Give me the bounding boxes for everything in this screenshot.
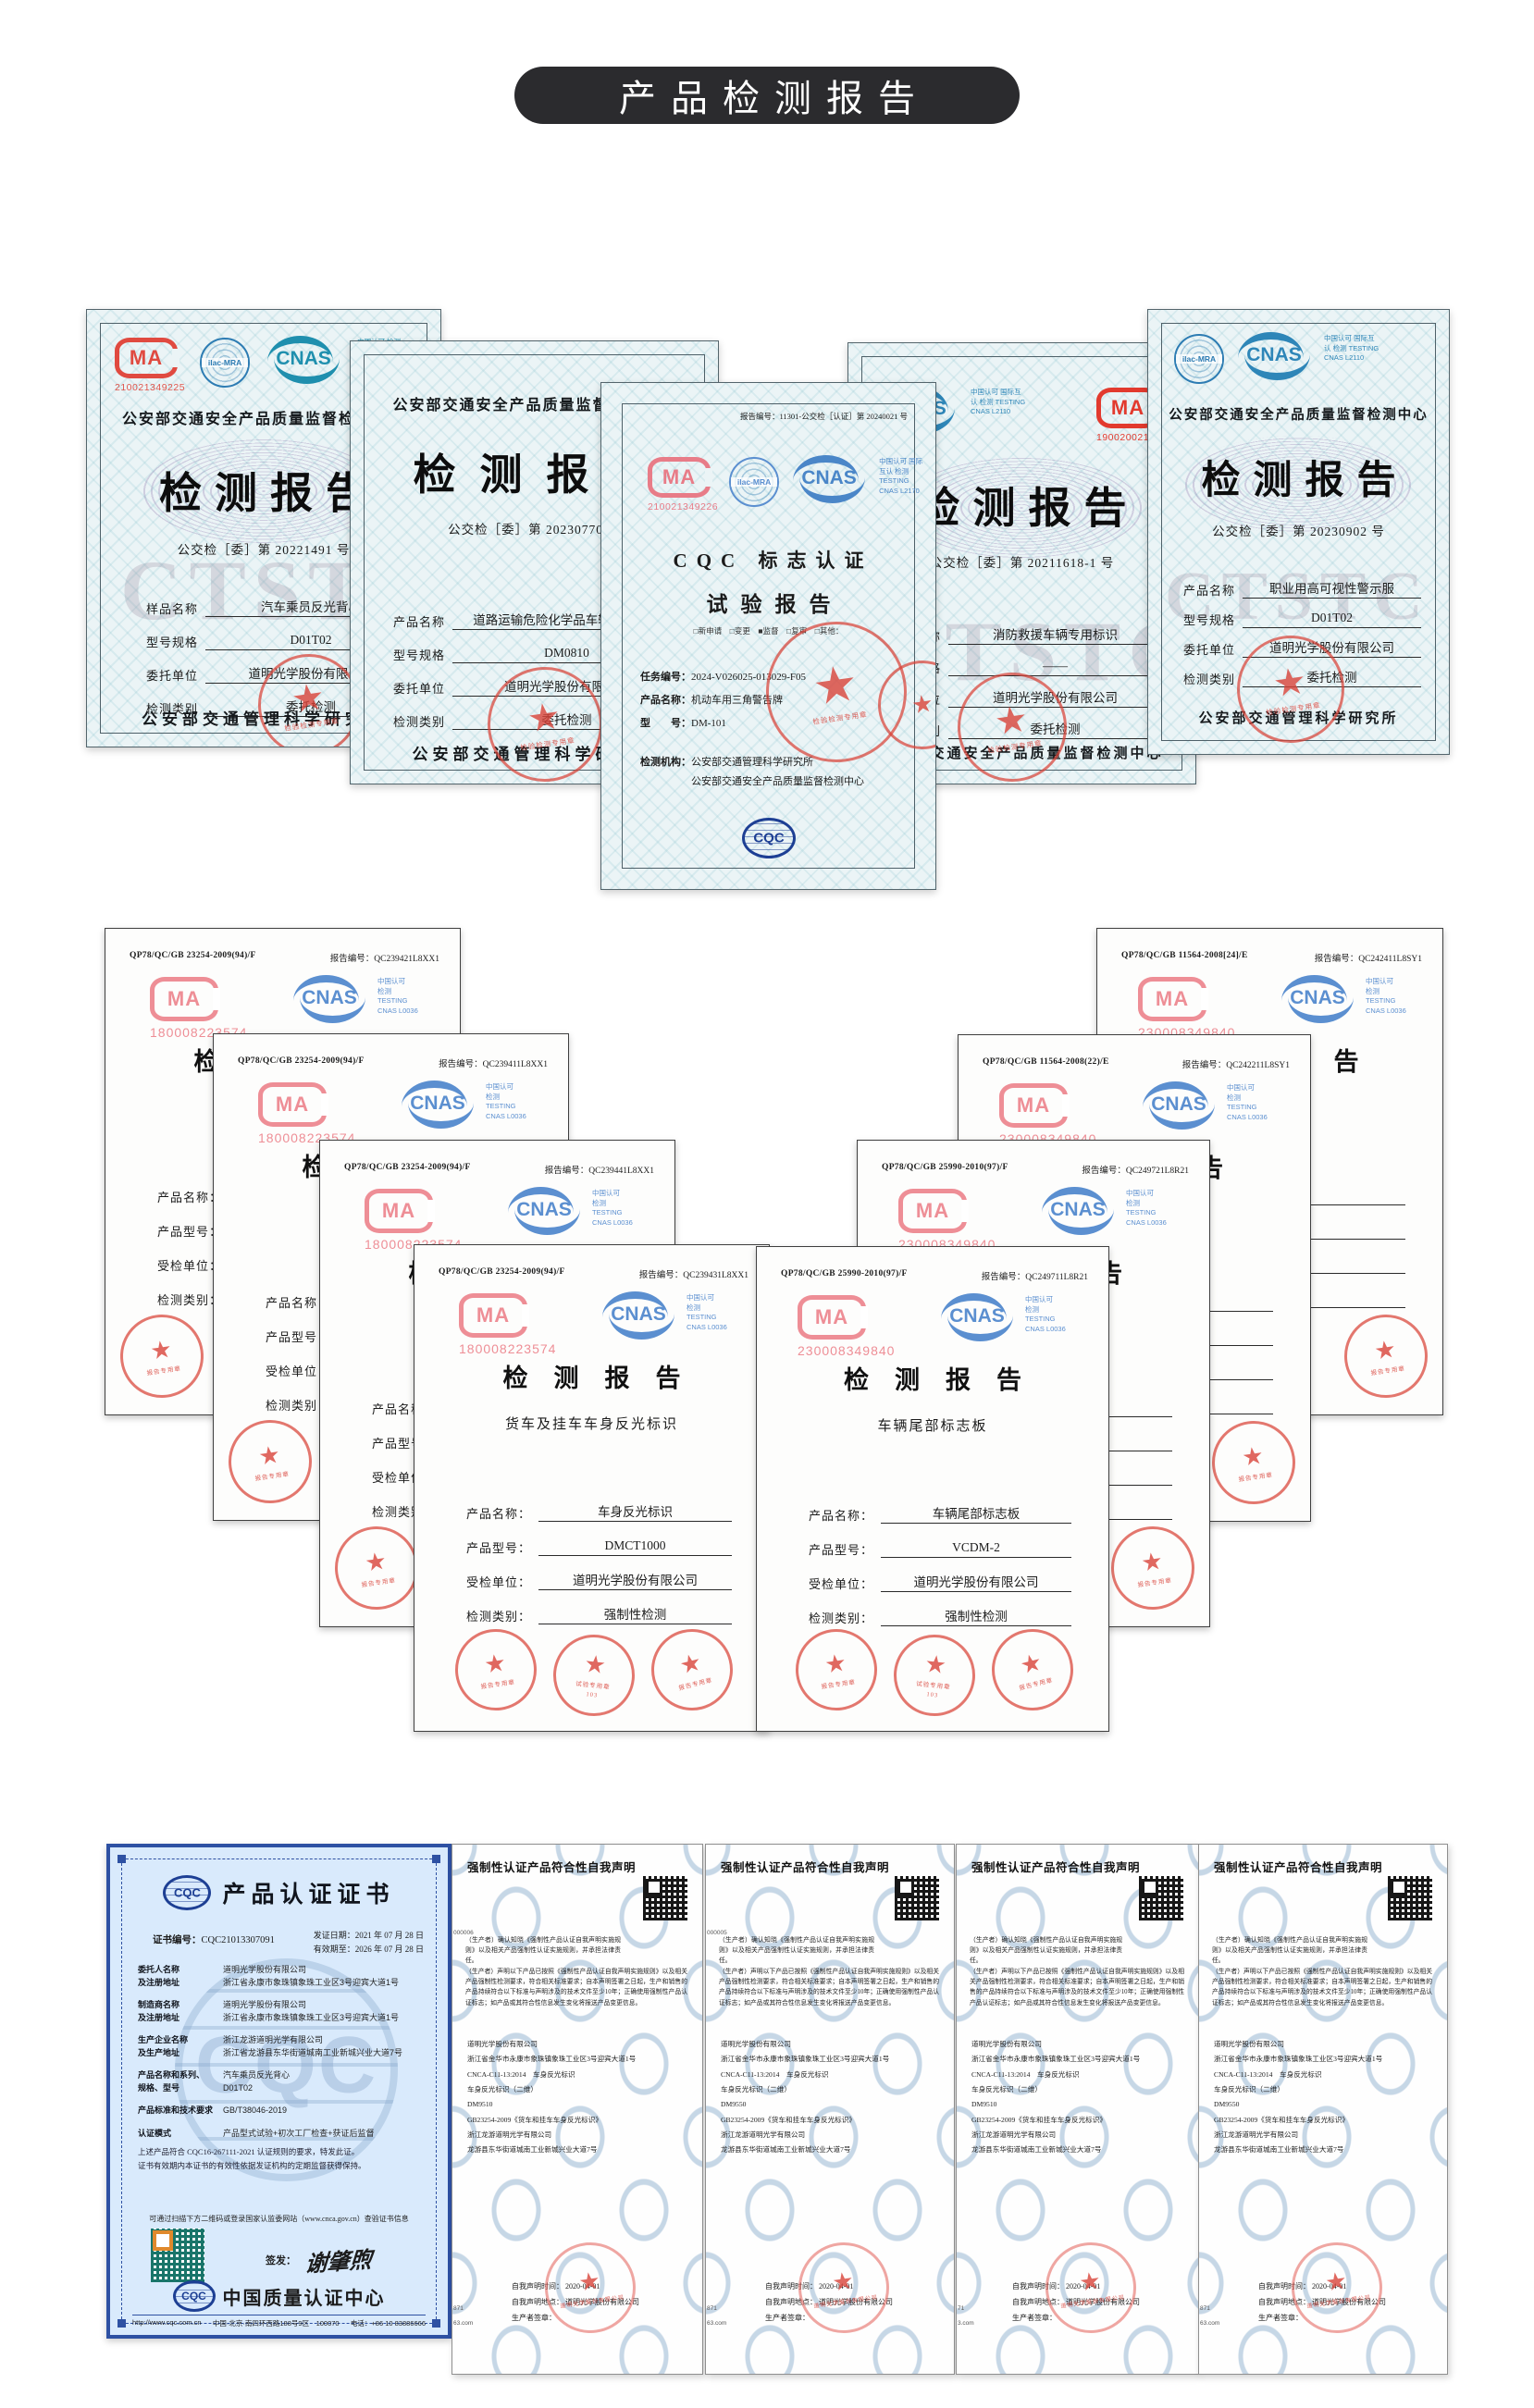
cqc-trial-report: 报告编号：11301-公交检［认证］第 20240021 号 MA 210021…: [600, 382, 936, 890]
cqc-product-certificate: CQC CQC 产品认证证书 证书编号：CQC21013307091 发证日期：…: [106, 1844, 452, 2339]
self-declaration-1: 强制性认证产品符合性自我声明 000006 （生产者）确认知晓《强制性产品认证自…: [452, 1844, 703, 2375]
cqc-logo: CQC: [163, 1875, 211, 1910]
field-label: 受检单位：: [466, 1573, 531, 1590]
signature-row: 签发： 谢肇煦: [266, 2243, 372, 2276]
star-icon: ★: [992, 700, 1030, 742]
report-title: 检测报告: [757, 1360, 1108, 1396]
trial-report-title: 试验报告: [601, 587, 935, 618]
cnas-side-text: 中国认可 国际互认 检测 TESTING CNAS L2170: [879, 457, 927, 496]
cma-icon: MA: [150, 977, 218, 1021]
row-value: 产品型式试验+初次工厂检查+获证后监督: [223, 2128, 375, 2141]
cma-logo-block: MA 180008223574: [150, 977, 247, 1040]
field-label: 检测类别: [393, 712, 445, 730]
star-icon: ★: [525, 698, 563, 739]
field-table: 产品名称：车辆尾部标志板 产品型号：VCDM-2 受检单位：道明光学股份有限公司…: [809, 1489, 1071, 1626]
field-label: 产品型号：: [809, 1540, 873, 1558]
report-cert-5: ilac-MRA CNAS 中国认可 国际互认 检测 TESTING CNAS …: [1147, 309, 1450, 755]
cnas-icon: CNAS: [265, 338, 342, 382]
row-label: 及注册地址: [138, 1977, 223, 1990]
row-label: 制造商名称: [138, 1999, 223, 2012]
report-number: 报告编号：QC249721L8R21: [1082, 1163, 1189, 1176]
standard-code: QP78/QC/GB 25990-2010(97)/F: [882, 1163, 1008, 1172]
cnas-side-text: 中国认可 国际互认 检测 TESTING CNAS L2110: [971, 388, 1028, 417]
report-stamp: ★报告专用章: [643, 1621, 742, 1720]
cqc-globe-icon: CQC: [742, 818, 796, 858]
star-icon: ★: [1078, 2269, 1103, 2296]
edge-fragment: 871: [453, 2305, 464, 2312]
row-value: GB/T38046-2019: [223, 2105, 287, 2118]
row-label: 及生产地址: [138, 2047, 223, 2060]
cma-icon: MA: [999, 1083, 1068, 1128]
cnas-side-text: 中国认可检测TESTINGCNAS L0036: [486, 1082, 543, 1127]
cma-logo-block: MA 210021349225: [115, 338, 185, 393]
field-value: DMCT1000: [538, 1538, 732, 1556]
ilac-mra-icon: ilac-MRA: [1174, 334, 1224, 384]
star-icon: ★: [910, 692, 935, 719]
model: DM-101: [691, 718, 726, 729]
cnas-side-text: 中国认可检测TESTINGCNAS L0036: [1126, 1189, 1183, 1233]
cnas-block: CNAS 中国认可检测TESTINGCNAS L0036: [505, 1189, 649, 1233]
report-stamp: ★报告专用章: [790, 1624, 882, 1715]
report-stamp: ★报告专用章: [329, 1521, 424, 1615]
qr-code: [895, 1876, 939, 1920]
sign-label: 签发：: [266, 2253, 296, 2267]
field-label: 产品名称：: [809, 1506, 873, 1524]
edge-fragment: 63.com: [1200, 2320, 1219, 2327]
row-label: 产品标准和技术要求: [138, 2105, 223, 2118]
qr-code: [1388, 1876, 1432, 1920]
check-options: □新申请 □变更 ■监督 □复审 □其他：: [601, 625, 935, 636]
agency-line-2: 公安部交通安全产品质量监督检测中心: [691, 776, 864, 787]
org-name: 中国质量认证中心: [223, 2283, 386, 2310]
field-label: 产品名称: [393, 612, 445, 630]
star-icon: ★: [483, 1650, 508, 1677]
field-value: 职业用高可视性警示服: [1243, 578, 1421, 599]
cnas-block: CNAS 中国认可检测TESTINGCNAS L0036: [1279, 977, 1423, 1021]
row-value: 浙江龙游道明光学有限公司: [223, 2034, 402, 2047]
cma-icon: MA: [258, 1082, 327, 1127]
cnas-icon: CNAS: [1039, 1189, 1117, 1233]
cnas-block: CNAS 中国认可检测TESTINGCNAS L0036: [938, 1295, 1082, 1340]
report-stamp: ★报告专用章: [1206, 1415, 1301, 1510]
cnas-side-text: 中国认可检测TESTINGCNAS L0036: [592, 1189, 649, 1233]
cnas-side-text: 中国认可检测TESTINGCNAS L0036: [1366, 977, 1423, 1021]
cma-icon: MA: [798, 1295, 866, 1340]
certificate-rows: 委托人名称及注册地址道明光学股份有限公司浙江省永康市象珠镇象珠工业区3号迎宾大道…: [138, 1964, 424, 2140]
declaration-paragraph: （生产者）确认知晓《强制性产品认证自我声明实施规则》以及相关产品强制性认证实施规…: [1212, 1935, 1367, 1967]
star-icon: ★: [149, 1337, 174, 1364]
cma-code: 210021349225: [115, 382, 185, 393]
cnas-icon: CNAS: [291, 977, 368, 1021]
page-title: 产品检测报告: [604, 68, 930, 122]
cnas-icon: CNAS: [399, 1082, 476, 1127]
field-value: 强制性检测: [881, 1606, 1071, 1626]
report-number: 报告编号：QC242211L8SY1: [1182, 1057, 1290, 1070]
field-label: 检测类别：: [809, 1609, 873, 1626]
cnas-side-text: 中国认可 国际互认 检测 TESTING CNAS L2110: [1324, 334, 1381, 364]
star-icon: ★: [810, 658, 860, 713]
page-title-banner: 产品检测报告: [514, 67, 1020, 124]
ilac-mra-icon: ilac-MRA: [200, 338, 250, 388]
cma-code: 210021349226: [648, 501, 718, 512]
self-declaration-3: 强制性认证产品符合性自我声明 （生产者）确认知晓《强制性产品认证自我声明实施规则…: [956, 1844, 1199, 2375]
star-icon: ★: [1270, 662, 1308, 704]
product-info-lines: 道明光学股份有限公司浙江省金华市永康市象珠镇象珠工业区3号迎宾大道1号 CNCA…: [467, 2037, 636, 2158]
declaration-title: 强制性认证产品符合性自我声明: [467, 1858, 636, 1875]
declaration-paragraph: （生产者）声明以下产品已按照《强制性产品认证自我声明实施规则》以及相关产品强制性…: [1212, 1967, 1432, 2008]
star-icon: ★: [583, 1651, 607, 1677]
field-value: 车辆尾部标志板: [881, 1503, 1071, 1524]
star-icon: ★: [923, 1651, 947, 1677]
certificate-notes: 上述产品符合 CQC16-267111-2021 认证规则的要求，特发此证。 证…: [138, 2145, 424, 2174]
report-stamp: ★报告专用章: [983, 1621, 1082, 1720]
star-icon: ★: [831, 2269, 856, 2296]
cnas-icon: CNAS: [1235, 334, 1313, 378]
declaration-paragraph: （生产者）确认知晓《强制性产品认证自我声明实施规则》以及相关产品强制性认证实施规…: [465, 1935, 621, 1967]
cma-logo-block: MA 230008349840: [1138, 977, 1235, 1040]
logo-row: MA 210021349226 ilac-MRA CNAS 中国认可 国际互认 …: [648, 457, 927, 512]
footer-url: http://www.cqc.com.cn: [132, 2318, 202, 2328]
corner-ornament: [118, 2319, 126, 2328]
report-number: 报告编号：11301-公交检［认证］第 20240021 号: [740, 411, 908, 422]
cma-logo-block: MA 230008349840: [999, 1083, 1096, 1146]
star-icon: ★: [677, 1649, 704, 1678]
row-value: 浙江省永康市象珠镇象珠工业区3号迎宾大道1号: [223, 2012, 399, 2025]
report-number: 公交检［委］第 20230902 号: [1148, 521, 1449, 539]
cert-header: CQC 产品认证证书: [110, 1875, 448, 1910]
cma-icon: MA: [648, 457, 711, 498]
standard-code: QP78/QC/GB 11564-2008[24]/E: [1121, 951, 1248, 960]
declaration-paragraph: （生产者）声明以下产品已按照《强制性产品认证自我声明实施规则》以及相关产品强制性…: [465, 1967, 687, 2008]
report-number: 报告编号：QC239421L8XX1: [330, 951, 439, 964]
product-info-lines: 道明光学股份有限公司浙江省金华市永康市象珠镇象珠工业区3号迎宾大道1号 CNCA…: [721, 2037, 889, 2158]
test-stamp: ★试验专用章103: [890, 1631, 980, 1721]
standard-code: QP78/QC/GB 25990-2010(97)/F: [781, 1269, 908, 1278]
report-title: 检测报告: [414, 1358, 769, 1394]
cma-code: 180008223574: [459, 1341, 556, 1356]
footer-address: 中国·北京·南四环西路188号9区 100070: [213, 2318, 340, 2328]
star-icon: ★: [1324, 2269, 1349, 2296]
cma-icon: MA: [459, 1293, 527, 1338]
standard-code: QP78/QC/GB 23254-2009(94)/F: [130, 951, 256, 960]
field-value: VCDM-2: [881, 1540, 1071, 1558]
row-label: 认证模式: [138, 2128, 223, 2141]
edge-fragment: 63.com: [707, 2320, 726, 2327]
corner-ornament: [432, 2319, 440, 2328]
report-subtitle: 货车及挂车车身反光标识: [414, 1414, 769, 1433]
cma-logo-block: MA 210021349226: [648, 457, 718, 512]
cnas-block: CNAS 中国认可检测TESTINGCNAS L0036: [399, 1082, 543, 1127]
star-icon: ★: [577, 2269, 602, 2296]
star-icon: ★: [289, 678, 327, 720]
standard-code: QP78/QC/GB 23254-2009(94)/F: [238, 1056, 365, 1066]
task-no-label: 任务编号：: [640, 672, 691, 683]
row-value: D01T02: [223, 2082, 290, 2095]
certificate-footer: http://www.cqc.com.cn 中国·北京·南四环西路188号9区 …: [132, 2315, 426, 2328]
cnas-side-text: 中国认可检测TESTINGCNAS L0036: [1025, 1295, 1082, 1340]
edge-fragment: 71: [958, 2305, 964, 2312]
cma-logo-block: MA 180008223574: [459, 1293, 556, 1356]
report-stamp: ★报告专用章: [1339, 1309, 1433, 1403]
field-value: D01T02: [1243, 611, 1421, 628]
qr-code: [643, 1876, 687, 1920]
qr-code: [151, 2229, 204, 2282]
field-label: 型号规格: [393, 646, 445, 663]
field-label: 委托单位: [393, 679, 445, 697]
footer-phone: 电话：+86 10 83886666: [351, 2318, 426, 2328]
field-value: 道明光学股份有限公司: [538, 1570, 732, 1590]
edge-fragment: 871: [707, 2305, 717, 2312]
row-value: 汽车乘员反光背心: [223, 2069, 290, 2082]
field-table: 产品名称：车身反光标识 产品型号：DMCT1000 受检单位：道明光学股份有限公…: [466, 1488, 732, 1624]
field-value: 强制性检测: [538, 1604, 732, 1624]
cma-logo-block: MA 230008349840: [798, 1295, 895, 1358]
field-label: 型号规格: [1183, 611, 1235, 628]
corner-ornament: [118, 1855, 126, 1863]
cma-logo-block: MA 230008349840: [898, 1189, 996, 1252]
product-label: 产品名称：: [640, 695, 691, 706]
field-label: 检测类别: [1183, 670, 1235, 687]
edge-fragment: 3.com: [958, 2320, 974, 2327]
row-value: 浙江省永康市象珠镇象珠工业区3号迎宾大道1号: [223, 1977, 399, 1990]
report-number: 报告编号：QC242411L8SY1: [1315, 951, 1422, 964]
star-icon: ★: [257, 1442, 282, 1469]
report-number: 报告编号：QC239441L8XX1: [545, 1163, 654, 1176]
self-declaration-4: 强制性认证产品符合性自我声明 （生产者）确认知晓《强制性产品认证自我声明实施规则…: [1198, 1844, 1448, 2375]
star-icon: ★: [1241, 1443, 1266, 1470]
cnas-side-text: 中国认可检测TESTINGCNAS L0036: [1227, 1083, 1284, 1128]
declaration-title: 强制性认证产品符合性自我声明: [971, 1858, 1140, 1875]
self-declaration-2: 强制性认证产品符合性自我声明 000005 （生产者）确认知晓《强制性产品认证自…: [705, 1844, 955, 2375]
field-value: ——: [948, 659, 1162, 676]
cnas-icon: CNAS: [600, 1293, 677, 1338]
field-label: 委托单位: [1183, 640, 1235, 658]
white-report-front-right: QP78/QC/GB 25990-2010(97)/F 报告编号：QC24971…: [756, 1246, 1109, 1732]
model-label: 型 号：: [640, 718, 691, 729]
signature: 谢肇煦: [304, 2241, 373, 2278]
cqc-cert-title: CQC 标志认证: [601, 546, 935, 574]
row-value: 道明光学股份有限公司: [223, 1964, 399, 1977]
row-label: 生产企业名称: [138, 2034, 223, 2047]
valid-until: 有效期至：2026 年 07 月 28 日: [314, 1943, 424, 1957]
agency-label: 检测机构：: [640, 757, 691, 768]
declaration-paragraph: （生产者）确认知晓《强制性产品认证自我声明实施规则》以及相关产品强制性认证实施规…: [970, 1935, 1122, 1967]
cnas-icon: CNAS: [1279, 977, 1356, 1021]
note-line: 证书有效期内本证书的有效性依据发证机构的定期监督获得保持。: [138, 2159, 424, 2173]
cnas-block: CNAS 中国认可检测TESTINGCNAS L0036: [1140, 1083, 1284, 1128]
standard-code: QP78/QC/GB 23254-2009(94)/F: [344, 1163, 471, 1172]
declaration-title: 强制性认证产品符合性自我声明: [721, 1858, 889, 1875]
report-stamp: ★报告专用章: [115, 1309, 209, 1403]
logo-row: ilac-MRA CNAS 中国认可 国际互认 检测 TESTING CNAS …: [1174, 334, 1381, 384]
star-icon: ★: [1018, 1649, 1045, 1678]
declaration-paragraph: （生产者）声明以下产品已按照《强制性产品认证自我声明实施规则》以及相关产品强制性…: [719, 1967, 939, 2008]
declaration-paragraph: （生产者）声明以下产品已按照《强制性产品认证自我声明实施规则》以及相关产品强制性…: [970, 1967, 1184, 2008]
cnas-icon: CNAS: [505, 1189, 583, 1233]
row-label: 规格、型号: [138, 2082, 223, 2095]
test-stamp: ★试验专用章103: [550, 1631, 639, 1721]
star-icon: ★: [364, 1549, 389, 1575]
cnas-icon: CNAS: [1140, 1083, 1218, 1128]
cnas-block: CNAS 中国认可检测TESTINGCNAS L0036: [291, 977, 435, 1021]
cma-logo-block: MA 180008223574: [258, 1082, 355, 1145]
declaration-paragraph: （生产者）确认知晓《强制性产品认证自我声明实施规则》以及相关产品强制性认证实施规…: [719, 1935, 874, 1967]
field-value: 道明光学股份有限公司: [881, 1572, 1071, 1592]
cma-icon: MA: [115, 338, 178, 378]
cma-logo-block: MA 180008223574: [365, 1189, 462, 1252]
field-value: 消防救援车辆专用标识: [948, 624, 1162, 645]
field-label: 检测类别：: [466, 1607, 531, 1624]
cma-icon: MA: [365, 1189, 433, 1233]
org-row: CQC 中国质量认证中心: [110, 2280, 448, 2312]
row-label: 产品名称和系列、: [138, 2069, 223, 2082]
report-subtitle: 车辆尾部标志板: [757, 1415, 1108, 1435]
issuer-header: 公安部交通安全产品质量监督检测中心: [1148, 404, 1449, 424]
report-number: 报告编号：QC239431L8XX1: [639, 1267, 748, 1280]
standard-code: QP78/QC/GB 23254-2009(94)/F: [439, 1267, 565, 1277]
report-stamp: ★报告专用章: [450, 1624, 541, 1715]
agency-line-1: 公安部交通管理科学研究所: [691, 757, 813, 768]
row-label: 及注册地址: [138, 2012, 223, 2025]
ilac-mra-icon: ilac-MRA: [729, 457, 779, 507]
cqc-logo: CQC: [173, 2280, 216, 2312]
product-info-lines: 道明光学股份有限公司浙江省金华市永康市象珠镇象珠工业区3号迎宾大道1号 CNCA…: [1214, 2037, 1382, 2158]
cnas-block: CNAS 中国认可检测TESTINGCNAS L0036: [600, 1293, 744, 1338]
qr-code: [1139, 1876, 1183, 1920]
cnas-block: CNAS 中国认可检测TESTINGCNAS L0036: [1039, 1189, 1183, 1233]
cnas-side-text: 中国认可检测TESTINGCNAS L0036: [687, 1293, 744, 1338]
field-label: 产品型号：: [466, 1538, 531, 1556]
report-stamp: ★报告专用章: [1106, 1521, 1200, 1615]
qr-hint: 可通过扫描下方二维码或登录国家认监委网站（www.cnca.gov.cn）查验证…: [110, 2214, 448, 2224]
cma-icon: MA: [1138, 977, 1206, 1021]
certificate-title: 产品认证证书: [222, 1876, 394, 1909]
field-label: 产品名称：: [466, 1504, 531, 1522]
declaration-title: 强制性认证产品符合性自我声明: [1214, 1858, 1382, 1875]
certificate-number: 证书编号：CQC21013307091: [153, 1933, 275, 1946]
certificate-dates: 发证日期：2021 年 07 月 28 日 有效期至：2026 年 07 月 2…: [314, 1929, 424, 1957]
star-icon: ★: [1140, 1549, 1165, 1575]
corner-ornament: [432, 1855, 440, 1863]
row-label: 委托人名称: [138, 1964, 223, 1977]
row-value: 浙江省龙游县东华街道城南工业新城兴业大道7号: [223, 2047, 402, 2060]
report-number: 报告编号：QC249711L8R21: [982, 1269, 1088, 1282]
note-line: 上述产品符合 CQC16-267111-2021 认证规则的要求，特发此证。: [138, 2145, 424, 2159]
row-value: 道明光学股份有限公司: [223, 1999, 399, 2012]
field-label: 产品名称: [1183, 581, 1235, 599]
star-icon: ★: [823, 1650, 848, 1677]
cnas-icon: CNAS: [938, 1295, 1016, 1340]
report-stamp: ★报告专用章: [223, 1414, 317, 1509]
standard-code: QP78/QC/GB 11564-2008(22)/E: [983, 1057, 1109, 1067]
report-title: 检测报告: [1148, 449, 1449, 505]
white-report-front-left: QP78/QC/GB 23254-2009(94)/F 报告编号：QC23943…: [414, 1244, 770, 1732]
field-value: 车身反光标识: [538, 1501, 732, 1522]
field-label: 型号规格: [146, 633, 198, 650]
cma-icon: MA: [898, 1189, 967, 1233]
cnas-icon: CNAS: [790, 457, 868, 501]
issue-date: 发证日期：2021 年 07 月 28 日: [314, 1929, 424, 1943]
edge-fragment: 871: [1200, 2305, 1210, 2312]
report-number: 报告编号：QC239411L8XX1: [439, 1056, 548, 1069]
field-label: 受检单位：: [809, 1574, 873, 1592]
product-info-lines: 道明光学股份有限公司浙江省金华市永康市象珠镇象珠工业区3号迎宾大道1号 CNCA…: [971, 2037, 1140, 2158]
cma-code: 230008349840: [798, 1343, 895, 1358]
field-label: 委托单位: [146, 666, 198, 684]
star-icon: ★: [1373, 1337, 1398, 1364]
field-label: 样品名称: [146, 599, 198, 617]
edge-fragment: 63.com: [453, 2320, 473, 2327]
cnas-side-text: 中国认可检测TESTINGCNAS L0036: [377, 977, 435, 1021]
